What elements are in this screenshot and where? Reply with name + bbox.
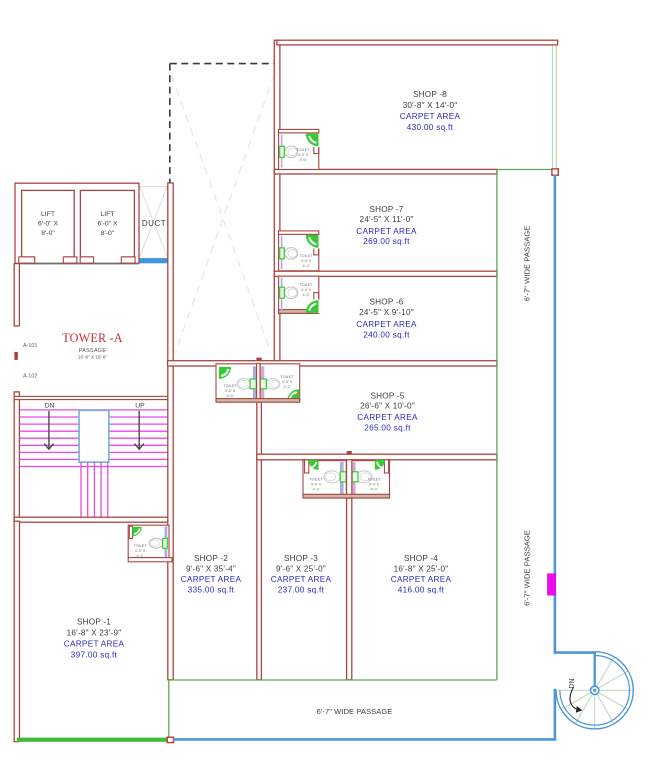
svg-text:335.00 sq.ft: 335.00 sq.ft (188, 586, 235, 595)
svg-text:CARPET AREA: CARPET AREA (391, 575, 452, 584)
svg-text:CARPET AREA: CARPET AREA (181, 575, 242, 584)
svg-text:24'-5" X 9'-10": 24'-5" X 9'-10" (359, 308, 414, 317)
svg-text:6'-0" X: 6'-0" X (98, 221, 118, 228)
svg-text:265.00 sq.ft: 265.00 sq.ft (364, 423, 411, 432)
svg-text:4'-0' X: 4'-0' X (298, 153, 309, 157)
svg-text:CARPET AREA: CARPET AREA (271, 575, 332, 584)
svg-text:TOILET: TOILET (133, 544, 147, 548)
svg-text:TOILET: TOILET (223, 384, 237, 388)
svg-text:16'-6" X 16'-6": 16'-6" X 16'-6" (78, 355, 107, 360)
svg-text:LIFT: LIFT (101, 211, 115, 218)
svg-text:6'-7" WIDE PASSAGE: 6'-7" WIDE PASSAGE (522, 530, 531, 606)
svg-text:4'-0' X: 4'-0' X (301, 259, 312, 263)
svg-text:26'-6" X 10'-0": 26'-6" X 10'-0" (360, 402, 415, 411)
svg-text:416.00 sq.ft: 416.00 sq.ft (398, 586, 445, 595)
svg-text:6'-7" WIDE PASSAGE: 6'-7" WIDE PASSAGE (317, 707, 393, 716)
svg-text:269.00 sq.ft: 269.00 sq.ft (363, 237, 410, 246)
svg-text:TOILET: TOILET (299, 283, 313, 287)
svg-text:9'-6" X 25'-0": 9'-6" X 25'-0" (276, 565, 326, 574)
svg-text:SHOP -7: SHOP -7 (369, 205, 403, 214)
svg-text:4'-0' X: 4'-0' X (135, 549, 146, 553)
svg-text:237.00 sq.ft: 237.00 sq.ft (278, 586, 325, 595)
svg-text:PASSAGE: PASSAGE (79, 348, 107, 354)
svg-text:4'-0': 4'-0' (300, 158, 307, 162)
svg-text:TOILET: TOILET (296, 148, 310, 152)
svg-text:SHOP -2: SHOP -2 (194, 554, 228, 563)
svg-text:9'-6" X 35'-4": 9'-6" X 35'-4" (186, 565, 236, 574)
svg-text:TOILET: TOILET (280, 375, 294, 379)
svg-text:UP: UP (135, 403, 145, 410)
svg-text:4'-0' X: 4'-0' X (225, 389, 236, 393)
svg-text:CARPET AREA: CARPET AREA (356, 227, 417, 236)
svg-text:4'-0': 4'-0' (227, 394, 234, 398)
svg-text:SHOP -6: SHOP -6 (369, 298, 403, 307)
svg-text:SHOP -5: SHOP -5 (370, 392, 404, 401)
svg-text:240.00 sq.ft: 240.00 sq.ft (363, 330, 410, 339)
svg-text:CARPET AREA: CARPET AREA (64, 640, 125, 649)
svg-text:4'-0' X: 4'-0' X (369, 483, 380, 487)
svg-text:4'-0': 4'-0' (303, 264, 310, 268)
svg-text:TOILET: TOILET (309, 478, 323, 482)
svg-text:SHOP -3: SHOP -3 (284, 554, 318, 563)
svg-text:6'-0" X: 6'-0" X (38, 221, 58, 228)
svg-text:397.00 sq.ft: 397.00 sq.ft (71, 651, 118, 660)
svg-text:8'-0": 8'-0" (41, 230, 55, 237)
svg-text:4'-0' X: 4'-0' X (311, 483, 322, 487)
svg-text:DN: DN (45, 403, 55, 410)
svg-text:CARPET AREA: CARPET AREA (357, 413, 418, 422)
svg-text:4'-0': 4'-0' (284, 385, 291, 389)
svg-text:A-102: A-102 (23, 374, 37, 380)
svg-text:4'-0': 4'-0' (313, 488, 320, 492)
svg-text:24'-5" X 11'-0": 24'-5" X 11'-0" (359, 215, 413, 224)
svg-text:8'-0": 8'-0" (101, 230, 115, 237)
svg-text:430.00 sq.ft: 430.00 sq.ft (407, 123, 454, 132)
svg-text:LIFT: LIFT (41, 211, 55, 218)
svg-text:SHOP -4: SHOP -4 (404, 554, 438, 563)
svg-text:TOILET: TOILET (299, 254, 313, 258)
svg-text:CARPET AREA: CARPET AREA (356, 320, 417, 329)
svg-text:SHOP -8: SHOP -8 (413, 90, 447, 99)
svg-text:TOILET: TOILET (367, 478, 381, 482)
svg-text:30'-8" X 14'-0": 30'-8" X 14'-0" (403, 101, 458, 110)
svg-text:CARPET AREA: CARPET AREA (400, 112, 461, 121)
svg-text:A-101: A-101 (23, 343, 37, 349)
svg-text:4'-0': 4'-0' (303, 293, 310, 297)
svg-text:DN: DN (569, 678, 576, 688)
svg-text:6'-7" WIDE PASSAGE: 6'-7" WIDE PASSAGE (522, 226, 531, 302)
svg-text:16'-8" X 23'-9": 16'-8" X 23'-9" (67, 629, 122, 638)
svg-text:4'-0' X: 4'-0' X (282, 380, 293, 384)
svg-text:DUCT: DUCT (142, 219, 166, 228)
svg-text:4'-0': 4'-0' (371, 488, 378, 492)
svg-text:TOWER -A: TOWER -A (62, 331, 123, 345)
svg-text:SHOP -1: SHOP -1 (77, 618, 111, 627)
svg-text:4'-0' X: 4'-0' X (301, 288, 312, 292)
svg-text:16'-8" X 25'-0": 16'-8" X 25'-0" (394, 565, 449, 574)
